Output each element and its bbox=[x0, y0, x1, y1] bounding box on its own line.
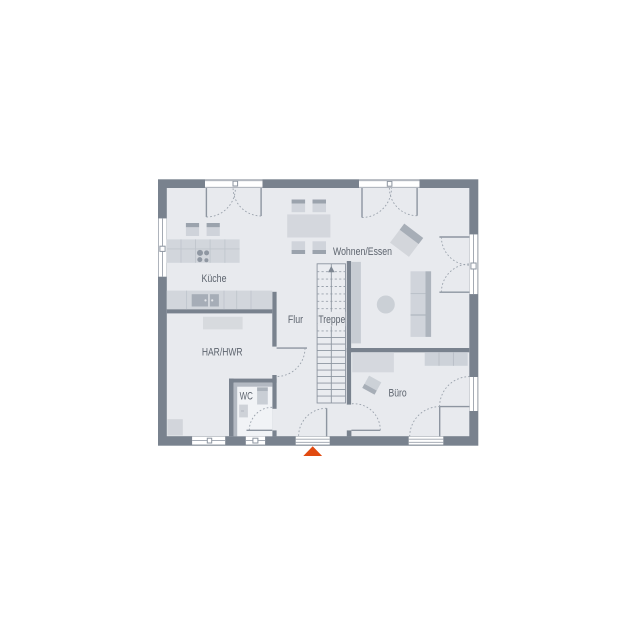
svg-text:Küche: Küche bbox=[201, 273, 226, 285]
svg-text:Treppe: Treppe bbox=[318, 314, 345, 326]
svg-text:Wohnen/Essen: Wohnen/Essen bbox=[333, 246, 392, 258]
svg-text:WC: WC bbox=[240, 391, 253, 403]
svg-text:Flur: Flur bbox=[288, 314, 303, 326]
svg-text:HAR/HWR: HAR/HWR bbox=[202, 346, 243, 358]
svg-text:Büro: Büro bbox=[389, 388, 407, 400]
